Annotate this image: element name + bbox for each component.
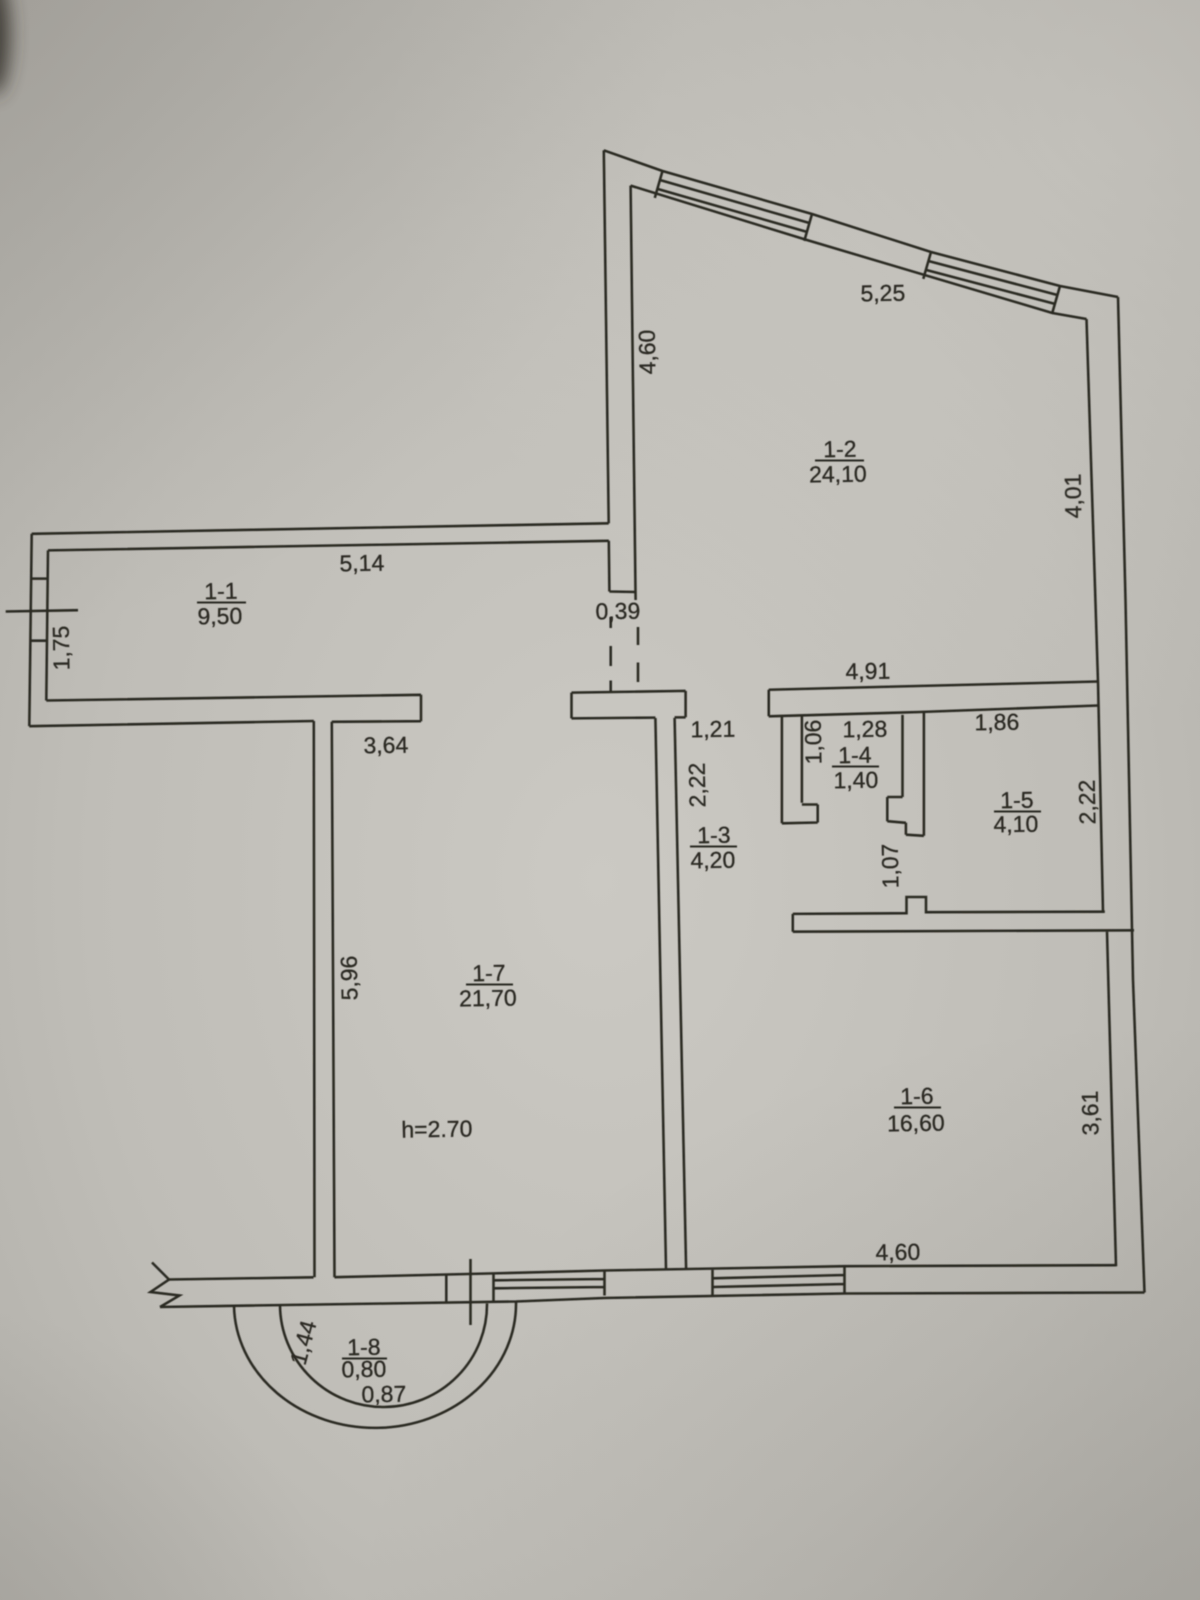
svg-text:4,20: 4,20	[690, 847, 735, 874]
svg-text:4,01: 4,01	[1060, 473, 1087, 518]
svg-text:1-6: 1-6	[900, 1083, 934, 1110]
svg-text:2,22: 2,22	[684, 762, 711, 807]
svg-text:16,60: 16,60	[887, 1110, 945, 1137]
svg-text:1-1: 1-1	[204, 578, 238, 605]
svg-text:2,22: 2,22	[1074, 779, 1101, 824]
svg-text:1,40: 1,40	[833, 767, 878, 794]
svg-text:1-3: 1-3	[697, 822, 731, 849]
svg-text:5,14: 5,14	[339, 550, 384, 577]
svg-text:4,10: 4,10	[993, 811, 1038, 838]
svg-text:21,70: 21,70	[459, 985, 517, 1012]
svg-text:5,96: 5,96	[336, 955, 363, 1000]
svg-text:1,86: 1,86	[974, 709, 1019, 736]
svg-text:1,21: 1,21	[690, 716, 735, 743]
svg-text:1,28: 1,28	[842, 716, 887, 743]
svg-text:3,64: 3,64	[363, 732, 408, 759]
svg-text:24,10: 24,10	[809, 461, 867, 488]
svg-text:h=2.70: h=2.70	[401, 1115, 472, 1142]
svg-text:5,25: 5,25	[860, 280, 905, 307]
svg-text:0,80: 0,80	[341, 1356, 386, 1383]
svg-text:0,87: 0,87	[361, 1381, 406, 1408]
svg-text:1,75: 1,75	[48, 625, 75, 670]
svg-text:3,61: 3,61	[1077, 1090, 1104, 1135]
svg-text:1-2: 1-2	[823, 436, 857, 463]
svg-text:0,39: 0,39	[595, 598, 640, 625]
svg-text:1-5: 1-5	[1000, 787, 1034, 814]
svg-text:1-4: 1-4	[838, 742, 872, 769]
svg-text:9,50: 9,50	[197, 603, 242, 630]
svg-text:4,60: 4,60	[875, 1239, 920, 1266]
svg-text:1-7: 1-7	[472, 960, 506, 987]
svg-text:4,91: 4,91	[845, 658, 890, 685]
svg-text:4,60: 4,60	[634, 329, 661, 374]
svg-text:1,07: 1,07	[877, 843, 904, 888]
svg-text:1,06: 1,06	[800, 719, 827, 764]
